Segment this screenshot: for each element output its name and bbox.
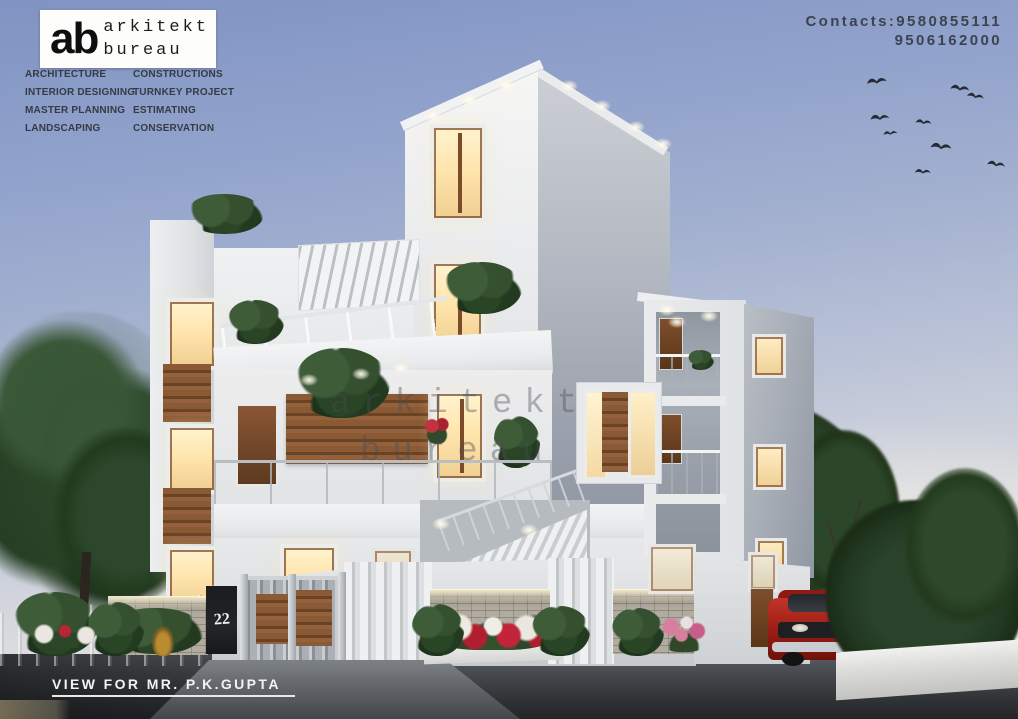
planter-shrub	[412, 604, 464, 656]
downlight-glow	[432, 518, 450, 530]
suv-wheel	[782, 652, 804, 666]
downlight-glow	[658, 304, 676, 316]
gate-wood-panel	[256, 594, 288, 644]
gate-post	[338, 572, 346, 666]
house-number-plate: 22	[206, 586, 237, 654]
terrace-plant	[228, 300, 284, 344]
service-item: LANDSCAPING	[25, 120, 135, 138]
downlight-glow	[654, 138, 672, 150]
logo-name-line1: arkitekt	[103, 16, 209, 39]
lit-window	[166, 298, 218, 370]
rooftop-plant	[188, 194, 264, 234]
logo-monogram: ab	[50, 17, 97, 61]
lit-window	[166, 424, 218, 494]
bird-icon	[915, 169, 931, 174]
downlight-glow	[627, 121, 645, 133]
gate-wood-panel	[296, 590, 332, 646]
pink-flowerbed	[658, 610, 710, 652]
watermark-line1: arkitekt	[330, 380, 670, 428]
wood-cladding-panel	[163, 488, 211, 544]
bird-icon	[950, 84, 969, 91]
wood-cladding-panel	[163, 364, 211, 422]
balcony-slab	[650, 494, 726, 504]
birds-flock	[843, 62, 1018, 188]
downlight-glow	[352, 368, 370, 380]
logo-name: arkitekt bureau	[103, 16, 209, 62]
services-list-col2: CONSTRUCTIONS TURNKEY PROJECT ESTIMATING…	[133, 66, 234, 138]
downlight-glow	[300, 374, 318, 386]
service-item: ARCHITECTURE	[25, 66, 135, 84]
firm-logo: ab arkitekt bureau	[40, 10, 216, 68]
window	[748, 552, 778, 592]
contact-line2: 9506162000	[805, 31, 1002, 50]
service-item: CONSTRUCTIONS	[133, 66, 234, 84]
downlight-glow	[460, 94, 478, 106]
view-caption: VIEW FOR MR. P.K.GUPTA	[52, 676, 295, 697]
accent-plant	[152, 626, 174, 656]
pergola-slat-canopy	[298, 239, 420, 311]
window	[648, 544, 696, 594]
downlight-glow	[392, 362, 410, 374]
planter-shrub	[532, 606, 590, 656]
curb-marking	[0, 700, 70, 719]
bird-icon	[883, 130, 897, 135]
terrace-plant	[444, 262, 522, 314]
gate-post	[288, 574, 296, 666]
services-list-col1: ARCHITECTURE INTERIOR DESIGNING MASTER P…	[25, 66, 135, 138]
bird-icon	[866, 77, 887, 85]
contact-numbers: Contacts:9580855111 9506162000	[805, 12, 1002, 50]
downlight-glow	[700, 310, 718, 322]
bird-icon	[915, 119, 931, 125]
suv-headlight	[792, 624, 808, 632]
architectural-render-board: 22 arkitekt bureau ab arkitekt bureau	[0, 0, 1018, 719]
service-item: MASTER PLANNING	[25, 102, 135, 120]
house-number: 22	[213, 610, 230, 629]
service-item: ESTIMATING	[133, 102, 234, 120]
planter-shrub	[612, 608, 664, 656]
watermark-line2: bureau	[360, 428, 670, 476]
roadside-flowerbed	[30, 620, 100, 648]
watermark: arkitekt bureau	[330, 380, 670, 476]
foreground-bush	[905, 468, 1018, 623]
downlight-glow	[593, 100, 611, 112]
downlight-glow	[520, 524, 538, 536]
bird-icon	[987, 160, 1006, 168]
logo-name-line2: bureau	[103, 39, 209, 62]
bird-icon	[967, 92, 985, 100]
led-strip-glow	[430, 589, 550, 603]
lit-window	[753, 444, 786, 490]
window-mullion	[458, 133, 462, 212]
gate-post	[240, 574, 248, 666]
downlight-glow	[424, 110, 442, 122]
contact-line1: Contacts:9580855111	[805, 12, 1002, 31]
downlight-glow	[497, 79, 515, 91]
lit-window	[430, 124, 486, 222]
bird-icon	[930, 142, 951, 149]
downlight-glow	[560, 80, 578, 92]
service-item: INTERIOR DESIGNING	[25, 84, 135, 102]
lit-window	[752, 334, 786, 378]
balcony-plant	[688, 350, 714, 370]
service-item: TURNKEY PROJECT	[133, 84, 234, 102]
downlight-glow	[668, 316, 686, 328]
bird-icon	[870, 114, 889, 121]
service-item: CONSERVATION	[133, 120, 234, 138]
